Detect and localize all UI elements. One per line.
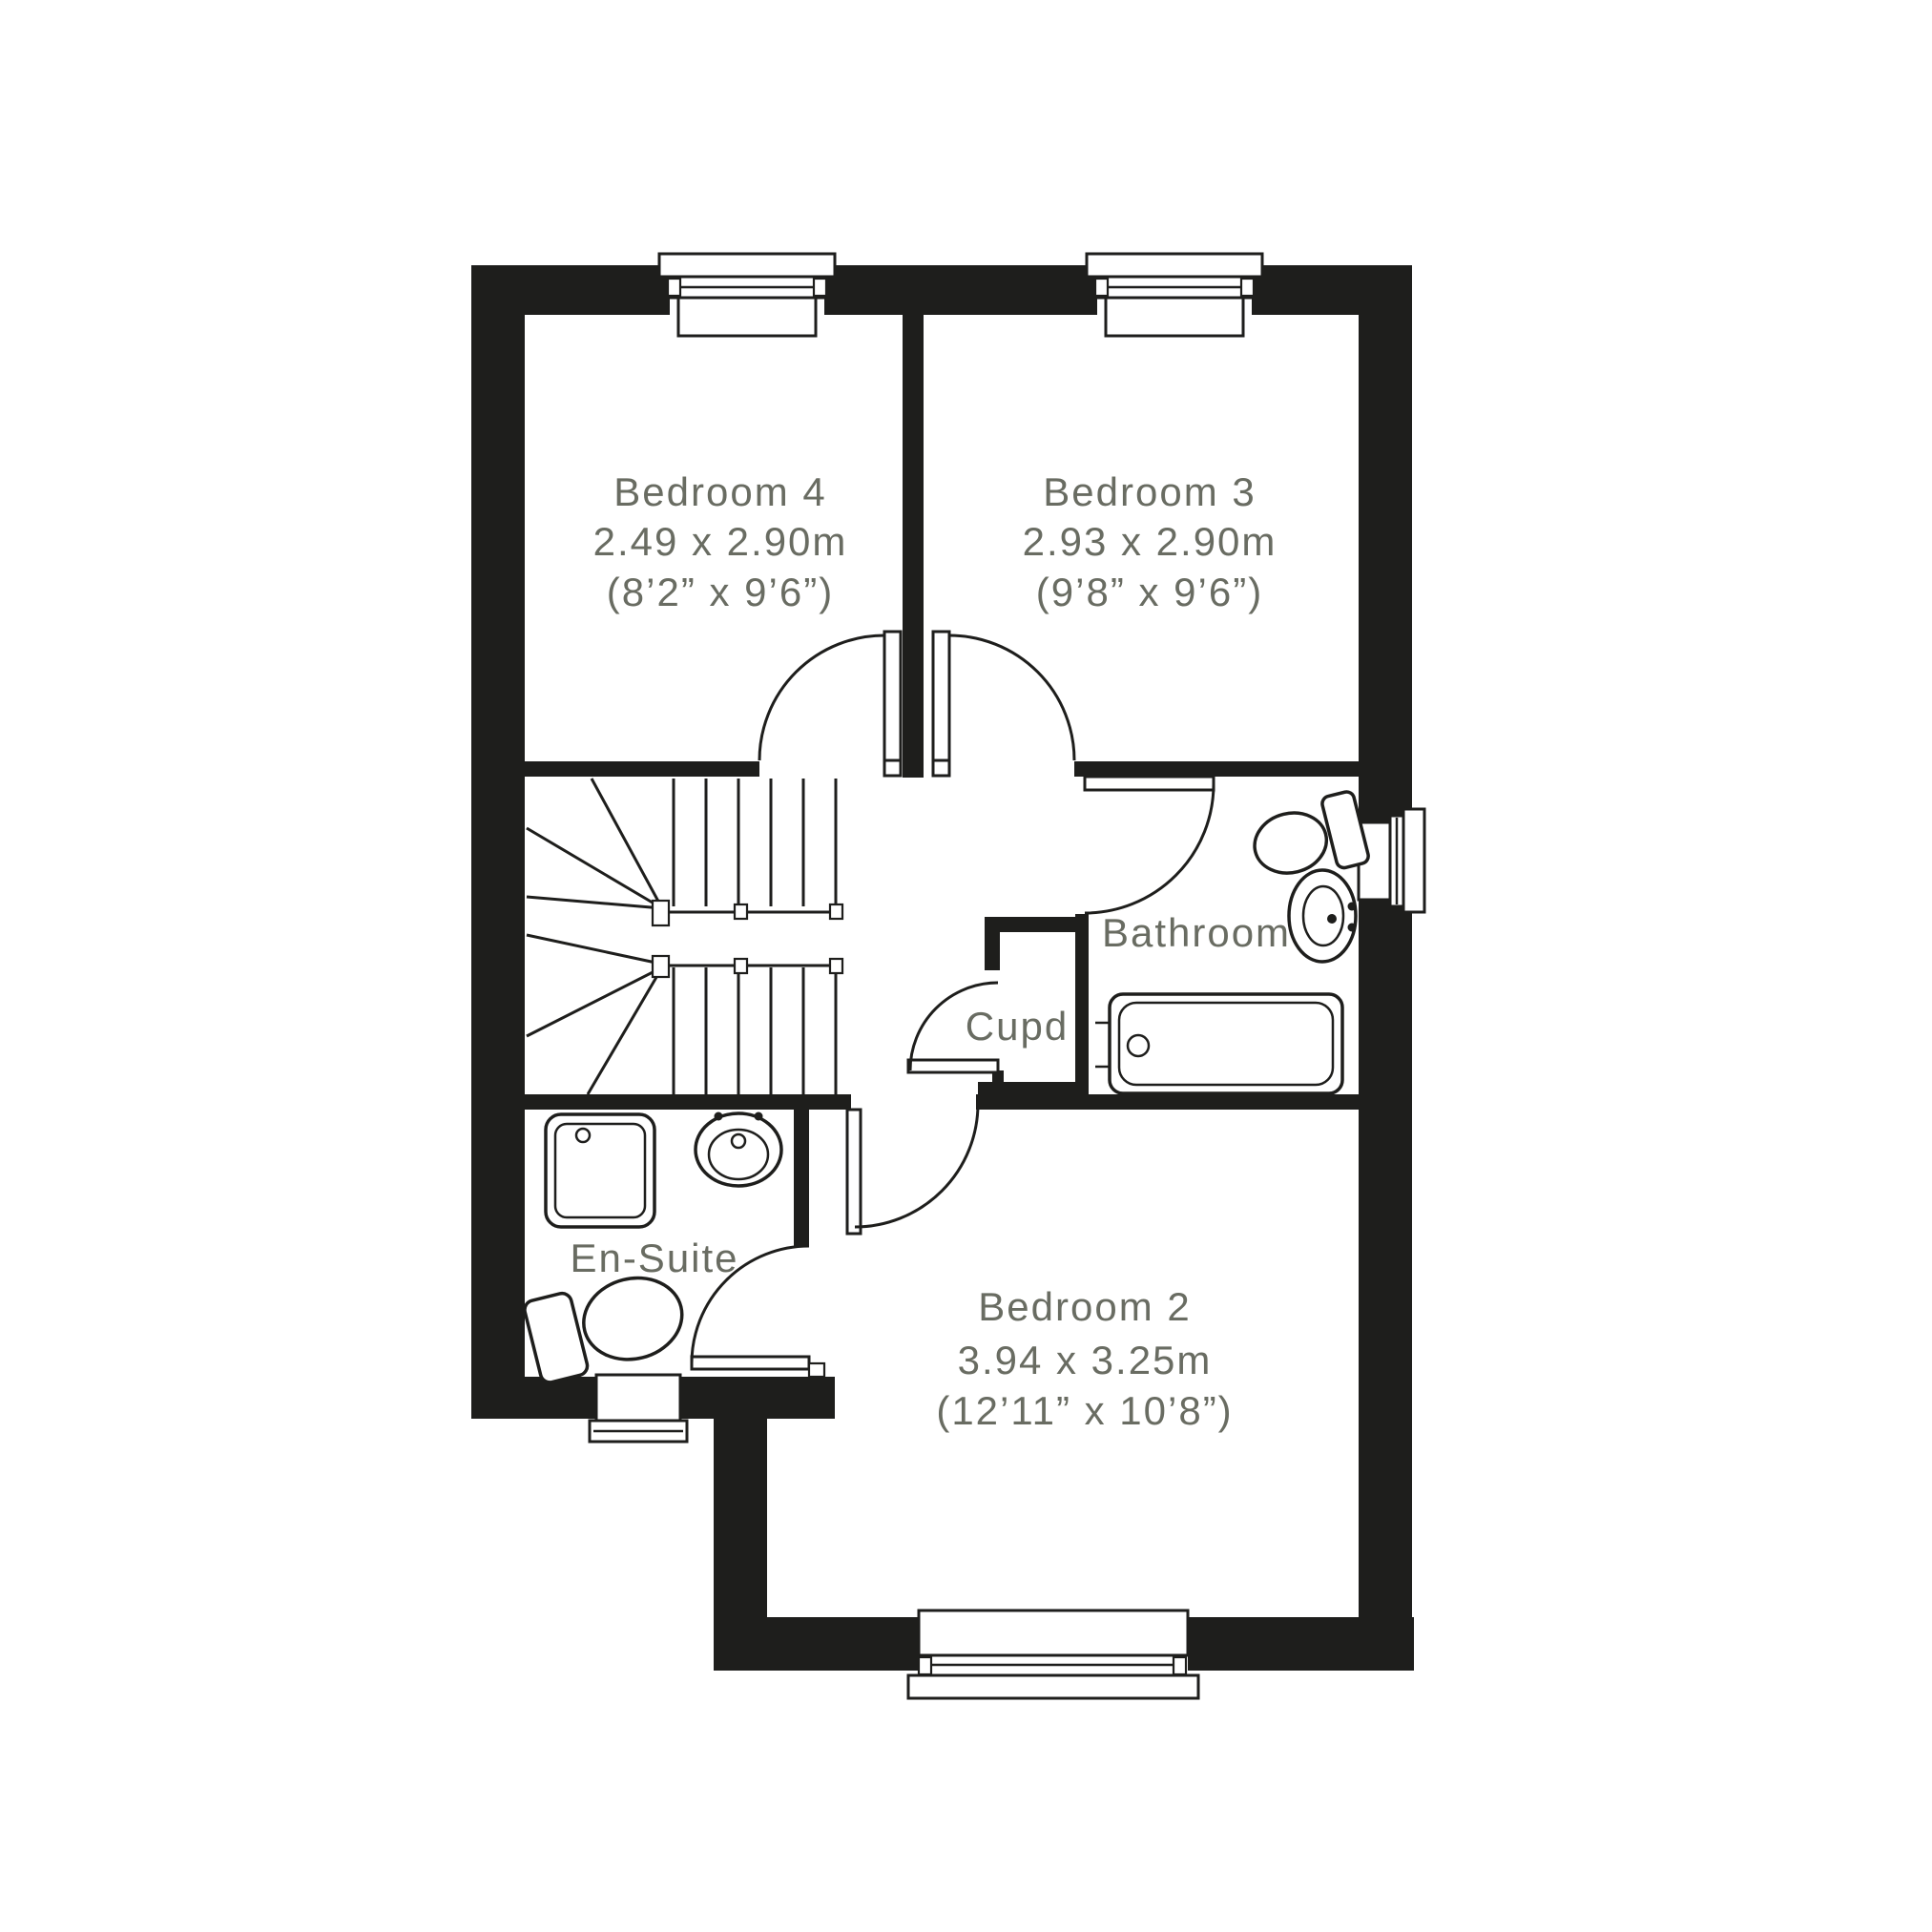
bedroom3-size-imperial: (9’8” x 9’6”) [1036, 570, 1263, 614]
window-bedroom2 [908, 1610, 1198, 1698]
wall-bedroom-divider [903, 315, 924, 778]
window-bedroom3 [1087, 254, 1262, 336]
ensuite-name: En-Suite [570, 1236, 738, 1280]
wall-bottom-right [1188, 1617, 1414, 1671]
wall-right-upper [1359, 265, 1412, 822]
wall-cupboard-top [985, 917, 1089, 932]
door-leaf-bedroom3 [933, 632, 949, 760]
ensuite-basin [696, 1112, 781, 1187]
bathtub [1095, 994, 1342, 1093]
wall-bedroom4-bottom [525, 761, 759, 777]
bedroom2-size-imperial: (12’11” x 10’8”) [936, 1388, 1233, 1433]
bedroom4-size-imperial: (8’2” x 9’6”) [607, 570, 834, 614]
wall-top-middle [824, 265, 1097, 315]
wall-ensuite-bottom-left [525, 1377, 596, 1419]
floorplan-page: Bedroom 4 2.49 x 2.90m (8’2” x 9’6”) Bed… [0, 0, 1932, 1932]
bedroom2-size-metric: 3.94 x 3.25m [958, 1338, 1213, 1382]
bedroom3-size-metric: 2.93 x 2.90m [1023, 519, 1278, 564]
stair-newel-post-lower [653, 956, 669, 977]
bedroom4-name: Bedroom 4 [613, 469, 826, 514]
door-leaf-ensuite [692, 1357, 809, 1369]
bedroom2-name: Bedroom 2 [978, 1284, 1191, 1329]
bathroom-basin [1289, 870, 1357, 962]
bedroom4-size-metric: 2.49 x 2.90m [593, 519, 848, 564]
wall-ensuite-right [794, 1110, 809, 1246]
window-ensuite [590, 1375, 687, 1442]
window-bedroom4 [659, 254, 835, 336]
wall-cupboard-left [985, 917, 1000, 970]
door-leaf-bedroom4 [884, 632, 901, 760]
wall-landing-south-right [976, 1094, 1359, 1110]
wall-bathroom-left [1075, 914, 1089, 1095]
bathroom-name: Bathroom [1102, 910, 1291, 955]
wall-cupboard-hinge-stub [992, 1070, 1004, 1095]
wall-step [714, 1419, 767, 1671]
shower-tray [546, 1114, 654, 1227]
door-leaf-bathroom [1085, 777, 1214, 790]
wall-landing-south-left [525, 1094, 851, 1110]
bedroom3-name: Bedroom 3 [1043, 469, 1256, 514]
door-leaf-bedroom2 [847, 1110, 861, 1234]
cupboard-name: Cupd [966, 1004, 1069, 1049]
floorplan-drawing: Bedroom 4 2.49 x 2.90m (8’2” x 9’6”) Bed… [0, 0, 1932, 1932]
stair-newel-post-upper [653, 901, 669, 925]
wall-right-lower [1359, 900, 1412, 1671]
door-leaf-cupboard [908, 1060, 998, 1072]
wall-bedroom3-bottom [1074, 761, 1359, 777]
wall-ensuite-bottom-right [680, 1377, 835, 1419]
wall-left [471, 265, 525, 1419]
